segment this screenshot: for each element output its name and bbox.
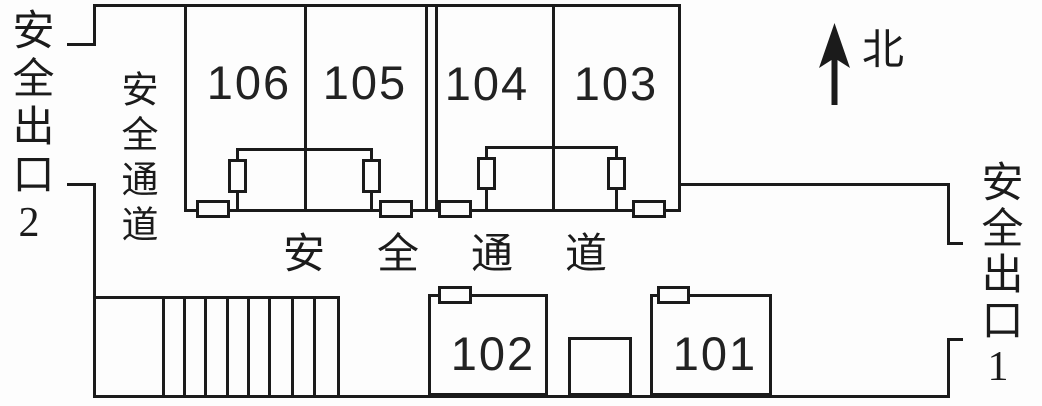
wall-left-upper xyxy=(93,4,96,46)
stair-step-line xyxy=(162,296,165,396)
wall-106-105 xyxy=(304,4,307,212)
stair-step-line xyxy=(183,296,186,396)
emergency-lamp-icon xyxy=(477,157,496,190)
stair-step-line xyxy=(313,296,316,396)
north-arrow-icon xyxy=(816,23,853,105)
north-label: 北 xyxy=(862,30,904,72)
stair-step-line xyxy=(204,296,207,396)
exit-light-icon xyxy=(657,286,690,304)
corridor-label-horizontal: 安全通道 xyxy=(283,234,659,276)
exit-light-icon xyxy=(632,200,666,218)
corridor-wall-right xyxy=(678,183,950,186)
corridor-label-vertical: 安全通道 xyxy=(117,70,154,250)
room-label-103: 103 xyxy=(561,58,671,110)
room106-wall-left xyxy=(184,4,187,212)
wall-105-104-a xyxy=(425,4,428,212)
room-label-101: 101 xyxy=(660,328,770,380)
exit1-opening-top-stub xyxy=(947,242,963,245)
evacuation-floor-plan: 106 105 104 103 102 101 安全出口2 安全通道 安全通道 … xyxy=(0,0,1042,406)
room-label-102: 102 xyxy=(438,328,548,380)
room-label-105: 105 xyxy=(310,57,420,109)
stair-step-line xyxy=(226,296,229,396)
room103-wall-right xyxy=(678,4,681,212)
room-label-104: 104 xyxy=(432,58,542,110)
emergency-lamp-icon xyxy=(362,159,381,193)
stair-step-line xyxy=(247,296,250,396)
exit-light-icon xyxy=(379,200,413,218)
lamp-wire-104-103 xyxy=(485,146,618,149)
wall-top xyxy=(93,4,681,7)
top-rooms-wall-bottom xyxy=(184,209,681,212)
column-block xyxy=(568,337,632,396)
stair-step-line xyxy=(268,296,271,396)
exit-1-label: 安全出口1 xyxy=(977,160,1019,394)
emergency-lamp-icon xyxy=(607,157,626,190)
emergency-lamp-icon xyxy=(228,159,247,193)
stair-step-line xyxy=(291,296,294,396)
wall-right-upper xyxy=(947,183,950,245)
exit2-opening-bottom-stub xyxy=(67,183,96,186)
exit-light-icon xyxy=(438,200,472,218)
wall-104-103 xyxy=(552,4,555,212)
exit-light-icon xyxy=(438,286,472,304)
exit-2-label: 安全出口2 xyxy=(8,8,50,252)
wall-right-lower xyxy=(947,338,950,398)
exit2-opening-top-stub xyxy=(67,43,96,46)
exit-light-icon xyxy=(196,200,230,218)
room-label-106: 106 xyxy=(194,57,304,109)
stairway xyxy=(93,296,340,398)
lamp-wire-106-105 xyxy=(236,148,373,151)
